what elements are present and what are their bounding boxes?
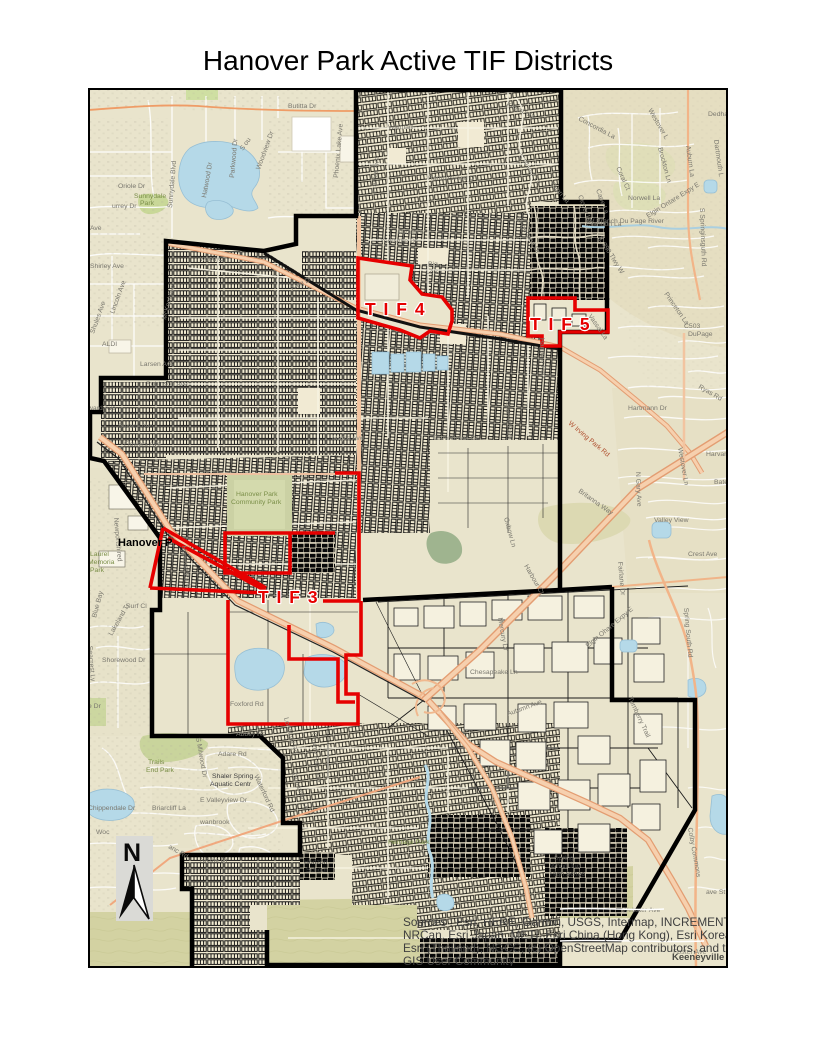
svg-text:Surf Cl: Surf Cl — [126, 603, 147, 610]
svg-text:Woc: Woc — [96, 829, 110, 836]
svg-text:Ramblewood D: Ramblewood D — [428, 175, 475, 182]
svg-text:Menards: Menards — [398, 229, 425, 236]
svg-text:wood Cir: wood Cir — [199, 256, 228, 263]
svg-text:N: N — [123, 839, 141, 867]
svg-text:Nicole Dr: Nicole Dr — [200, 857, 229, 864]
svg-text:ave St: ave St — [706, 889, 725, 896]
svg-text:Trails: Trails — [148, 759, 165, 766]
svg-text:wanbrook: wanbrook — [199, 819, 230, 826]
svg-text:Shirley Ave: Shirley Ave — [90, 263, 124, 270]
svg-text:Dedham La: Dedham La — [708, 111, 728, 118]
svg-text:N Gary Ave: N Gary Ave — [634, 472, 642, 507]
svg-text:Robinson Ave: Robinson Ave — [146, 381, 188, 388]
svg-text:Valley View: Valley View — [654, 517, 689, 524]
svg-text:Yorkshire Dr: Yorkshire Dr — [380, 238, 418, 245]
svg-text:Shorewood Dr: Shorewood Dr — [102, 657, 146, 664]
svg-text:Ave: Ave — [90, 225, 102, 232]
svg-text:Greenbrook Dr: Greenbrook Dr — [433, 435, 479, 442]
svg-text:Norwell La: Norwell La — [628, 195, 660, 202]
svg-text:Park: Park — [140, 200, 155, 207]
svg-text:Aquatic Centr: Aquatic Centr — [210, 781, 252, 788]
svg-text:T I F 5: T I F 5 — [530, 314, 591, 334]
svg-text:Webster Ave: Webster Ave — [622, 907, 661, 914]
svg-text:Memoria: Memoria — [88, 559, 115, 566]
svg-text:Spring: Spring — [554, 855, 574, 862]
svg-text:Hanover Park: Hanover Park — [538, 338, 546, 380]
svg-text:Shaler Spring: Shaler Spring — [212, 773, 253, 780]
svg-text:Maple Ave: Maple Ave — [332, 435, 364, 442]
svg-text:Sunnydale: Sunnydale — [134, 193, 166, 200]
svg-text:Chesapeake Ln: Chesapeake Ln — [470, 669, 518, 676]
svg-text:GIS User Community: GIS User Community — [403, 954, 515, 968]
svg-text:School: School — [306, 867, 327, 874]
svg-text:Crest Ave: Crest Ave — [688, 551, 718, 558]
svg-text:Hanover Park: Hanover Park — [236, 491, 278, 498]
svg-text:Esri (Thailand), NGCC, (c) Ope: Esri (Thailand), NGCC, (c) OpenStreetMap… — [403, 941, 728, 955]
svg-text:High Schoo: High Schoo — [550, 871, 585, 878]
svg-text:Adare Rd: Adare Rd — [218, 751, 247, 758]
svg-text:urrey Dr: urrey Dr — [112, 203, 137, 210]
svg-text:W Branch Du Page River: W Branch Du Page River — [588, 218, 665, 225]
svg-text:Horizon: Horizon — [304, 859, 328, 866]
svg-text:Laurel: Laurel — [90, 551, 109, 558]
svg-text:Park: Park — [90, 567, 105, 574]
svg-text:Butitta Dr: Butitta Dr — [288, 103, 317, 110]
svg-text:Flowers Ave: Flowers Ave — [124, 441, 161, 448]
svg-text:Chippendale Dr: Chippendale Dr — [88, 805, 136, 812]
svg-text:Briarcliff La: Briarcliff La — [152, 805, 186, 812]
svg-text:Hanover P: Hanover P — [118, 537, 172, 549]
svg-text:NRCan, Esri Japan, METI, Esri: NRCan, Esri Japan, METI, Esri China (Hon… — [403, 928, 728, 942]
svg-text:End Park: End Park — [146, 767, 175, 774]
svg-text:Walmart: Walmart — [388, 124, 413, 131]
svg-text:Big: Big — [428, 261, 438, 268]
svg-text:Hartmann Dr: Hartmann Dr — [628, 405, 668, 412]
svg-text:Community Park: Community Park — [231, 499, 282, 506]
svg-text:Stowell Ave: Stowell Ave — [118, 423, 153, 430]
svg-text:Foxford Rd: Foxford Rd — [230, 701, 264, 708]
svg-text:Hanover Park: Hanover Park — [504, 398, 512, 440]
svg-text:T I F 4: T I F 4 — [365, 299, 426, 319]
svg-text:Abbey Rd: Abbey Rd — [236, 731, 266, 738]
svg-text:Harvard: Harvard — [706, 451, 728, 458]
svg-text:Larsen Ave: Larsen Ave — [140, 361, 174, 368]
svg-text:e Dr: e Dr — [88, 703, 102, 710]
svg-text:Oriole Dr: Oriole Dr — [118, 183, 146, 190]
svg-text:ALDI: ALDI — [102, 341, 117, 348]
svg-text:Lots: Lots — [426, 269, 439, 276]
svg-text:E Valleyview Dr: E Valleyview Dr — [200, 797, 248, 804]
svg-text:Heritage Park: Heritage Park — [388, 839, 430, 846]
svg-text:Wood Jun: Wood Jun — [550, 863, 581, 870]
svg-text:Bates L: Bates L — [714, 479, 728, 486]
svg-text:ward Ave: ward Ave — [88, 405, 116, 412]
svg-text:DuPage: DuPage — [688, 331, 713, 338]
svg-text:T I F 3: T I F 3 — [258, 587, 319, 607]
svg-text:C503: C503 — [684, 323, 700, 330]
svg-text:Sources : Esri, HERE, Garmin,: Sources : Esri, HERE, Garmin, USGS, Inte… — [403, 915, 728, 929]
